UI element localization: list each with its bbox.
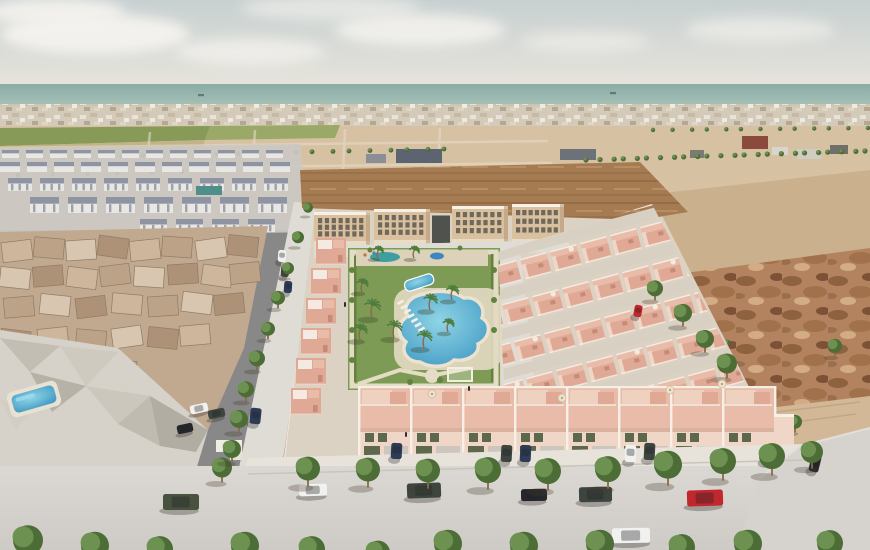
old-town-house bbox=[213, 292, 245, 315]
distant-tree-highlight bbox=[389, 148, 392, 151]
estate-roof bbox=[218, 150, 235, 153]
parasol-pole bbox=[721, 383, 723, 385]
palm-shadow bbox=[358, 317, 379, 324]
estate-arch bbox=[107, 184, 109, 191]
estate-roof bbox=[182, 197, 211, 204]
estate-roof bbox=[270, 162, 290, 166]
distant-tree-highlight bbox=[816, 150, 819, 153]
terrace-pergola bbox=[754, 392, 770, 405]
estate-arch bbox=[205, 204, 207, 212]
apartment-window bbox=[456, 228, 460, 233]
estate-roof bbox=[176, 219, 203, 224]
old-town-house bbox=[201, 264, 233, 288]
estate-arch bbox=[53, 204, 55, 212]
facade-cornice bbox=[514, 428, 566, 432]
apartment-window bbox=[497, 220, 501, 225]
terrace-pergola bbox=[702, 392, 718, 405]
distant-tree-highlight bbox=[739, 127, 742, 130]
palm-shadow bbox=[351, 292, 365, 297]
apartment-window bbox=[522, 219, 526, 224]
distant-tree-highlight bbox=[672, 155, 675, 158]
shrub bbox=[349, 267, 355, 273]
tree-shadow bbox=[823, 356, 838, 360]
estate-arch bbox=[157, 204, 159, 212]
estate-arch bbox=[115, 184, 117, 191]
tree-crown-highlight bbox=[759, 444, 777, 462]
estate-roof bbox=[258, 197, 287, 204]
estate-roof bbox=[54, 162, 74, 166]
old-town-house bbox=[161, 236, 192, 258]
tree-shadow bbox=[668, 325, 687, 330]
west-roof bbox=[333, 240, 344, 248]
west-terrace bbox=[313, 270, 327, 279]
estate-roof bbox=[200, 178, 224, 183]
tree-crown-highlight bbox=[434, 531, 454, 550]
estate-roof bbox=[162, 162, 182, 166]
distant-tree-highlight bbox=[635, 156, 638, 159]
estate-arch bbox=[81, 204, 83, 212]
facade-cornice bbox=[462, 428, 514, 432]
apartment-window bbox=[541, 210, 545, 215]
estate-arch bbox=[281, 204, 283, 212]
apartment-window bbox=[483, 212, 487, 217]
old-town-house bbox=[66, 266, 98, 290]
tree-shadow bbox=[527, 488, 554, 496]
terrace-pergola bbox=[494, 392, 510, 405]
west-door bbox=[333, 285, 338, 292]
warehouse bbox=[366, 154, 386, 163]
tree-crown-highlight bbox=[674, 305, 687, 318]
estate-arch bbox=[186, 184, 188, 191]
west-door bbox=[328, 315, 333, 322]
terrace-railing-inner bbox=[672, 404, 720, 406]
estate-roof bbox=[81, 162, 101, 166]
old-town-house bbox=[32, 265, 64, 288]
shuttered-window bbox=[690, 433, 699, 442]
old-town-house bbox=[111, 325, 143, 349]
old-town-house bbox=[229, 261, 261, 284]
terrace-railing bbox=[618, 386, 670, 388]
terrace-floor bbox=[726, 390, 756, 404]
estate-arch bbox=[11, 184, 13, 191]
terrace-railing-inner bbox=[516, 404, 564, 406]
estate-arch bbox=[179, 184, 181, 191]
car-white bbox=[608, 528, 650, 549]
apartment-window bbox=[419, 230, 423, 235]
tree-crown-highlight bbox=[696, 331, 709, 344]
apartment-window bbox=[412, 222, 416, 227]
west-roof bbox=[323, 300, 334, 308]
apartment-window bbox=[516, 210, 520, 215]
tree-crown-highlight bbox=[734, 531, 754, 550]
estate-arch bbox=[147, 184, 149, 191]
west-terrace bbox=[318, 240, 332, 249]
tree-crown-highlight bbox=[828, 339, 838, 349]
apartment-window bbox=[470, 212, 474, 217]
gazebo bbox=[448, 368, 472, 381]
palm-shadow bbox=[410, 347, 429, 353]
tree-shadow bbox=[256, 339, 271, 343]
tree-shadow bbox=[266, 308, 281, 312]
distant-tree-highlight bbox=[827, 126, 830, 129]
car-red bbox=[683, 489, 724, 511]
palm-shadow bbox=[440, 300, 456, 305]
distant-tree-highlight bbox=[368, 148, 371, 151]
estate-roof bbox=[30, 197, 59, 204]
distant-ship bbox=[610, 92, 616, 94]
estate-arch bbox=[91, 204, 93, 212]
distant-tree-highlight bbox=[658, 155, 661, 158]
apartment-window bbox=[483, 220, 487, 225]
cloud bbox=[685, 17, 835, 43]
palm-shadow bbox=[437, 332, 451, 337]
old-town-house bbox=[33, 237, 65, 260]
car-cabin bbox=[626, 449, 634, 457]
apartment-window bbox=[359, 231, 363, 236]
outbuilding bbox=[830, 145, 848, 154]
distant-tree-highlight bbox=[695, 154, 698, 157]
apartment-window bbox=[318, 231, 322, 236]
apartment-window bbox=[535, 219, 539, 224]
shuttered-window bbox=[378, 433, 387, 442]
distant-tree-highlight bbox=[854, 149, 857, 152]
facade-cornice bbox=[410, 428, 462, 432]
estate-arch bbox=[90, 184, 92, 191]
estate-roof bbox=[144, 197, 173, 204]
apartment-window bbox=[456, 220, 460, 225]
old-town-house bbox=[97, 235, 129, 259]
old-town-house bbox=[99, 263, 131, 287]
terrace-railing bbox=[566, 386, 618, 388]
apartment-window bbox=[399, 215, 403, 220]
entrance-gate bbox=[432, 213, 450, 243]
car-green bbox=[159, 494, 199, 515]
tree-crown-highlight bbox=[717, 354, 731, 368]
shuttered-window bbox=[625, 433, 634, 442]
distant-tree-highlight bbox=[310, 150, 313, 153]
sports-court bbox=[196, 186, 222, 195]
distant-tree-highlight bbox=[733, 153, 736, 156]
palm-shadow bbox=[380, 337, 399, 343]
west-base bbox=[316, 264, 346, 265]
west-base bbox=[296, 384, 326, 385]
apartment-window bbox=[490, 212, 494, 217]
tree-crown-highlight bbox=[475, 458, 493, 476]
estate-arch bbox=[250, 184, 252, 191]
parasol-pole bbox=[561, 397, 563, 399]
tree-crown-highlight bbox=[416, 459, 433, 476]
sea bbox=[0, 84, 870, 106]
apartment-window bbox=[456, 212, 460, 217]
apartment-window bbox=[339, 225, 343, 230]
apartment-parapet bbox=[452, 206, 508, 209]
distant-tree-highlight bbox=[812, 126, 815, 129]
car-cabin bbox=[645, 447, 653, 455]
estate-roof bbox=[0, 162, 20, 166]
estate-roof bbox=[68, 197, 97, 204]
tree-crown-highlight bbox=[586, 531, 606, 550]
apartment-window bbox=[339, 218, 343, 223]
estate-arch bbox=[58, 184, 60, 191]
tree-shadow bbox=[751, 473, 778, 481]
outbuilding bbox=[742, 136, 768, 149]
distant-tree-highlight bbox=[779, 151, 782, 154]
old-town-house bbox=[129, 238, 161, 261]
apartment-window bbox=[378, 215, 382, 220]
tree-crown-highlight bbox=[647, 281, 658, 292]
apartment-window bbox=[522, 210, 526, 215]
warehouse bbox=[396, 149, 442, 163]
plaza bbox=[425, 369, 439, 383]
west-roof bbox=[313, 360, 324, 368]
estate-roof bbox=[232, 178, 256, 183]
apartment-window bbox=[399, 222, 403, 227]
shuttered-window bbox=[638, 433, 647, 442]
west-base bbox=[306, 324, 336, 325]
car-cabin bbox=[279, 252, 285, 257]
tree-shadow bbox=[587, 486, 614, 494]
apartment-parapet bbox=[314, 212, 370, 215]
terrace-railing bbox=[514, 386, 566, 388]
estate-roof bbox=[220, 197, 249, 204]
distant-tree-highlight bbox=[778, 127, 781, 130]
terrace-floor bbox=[518, 390, 548, 404]
estate-arch bbox=[71, 204, 73, 212]
apartment-window bbox=[412, 215, 416, 220]
estate-arch bbox=[167, 204, 169, 212]
facade-cornice bbox=[722, 428, 774, 432]
apartment-window bbox=[477, 220, 481, 225]
estate-roof bbox=[122, 150, 139, 153]
tree-crown-highlight bbox=[238, 382, 249, 393]
old-town-house bbox=[133, 266, 164, 288]
distant-ship bbox=[198, 94, 204, 96]
estate-roof bbox=[212, 219, 239, 224]
estate-roof bbox=[135, 162, 155, 166]
apartment-window bbox=[318, 225, 322, 230]
terrace-floor bbox=[622, 390, 652, 404]
shuttered-window bbox=[586, 433, 595, 442]
apartment-window bbox=[378, 222, 382, 227]
apartment-window bbox=[405, 215, 409, 220]
terrace-floor bbox=[362, 390, 392, 404]
estate-arch bbox=[223, 204, 225, 212]
shuttered-window bbox=[469, 433, 478, 442]
estate-arch bbox=[233, 204, 235, 212]
terrace-railing bbox=[410, 386, 462, 388]
parasol-pole bbox=[431, 393, 433, 395]
estate-arch bbox=[154, 184, 156, 191]
west-door bbox=[323, 345, 328, 352]
tree-crown-highlight bbox=[249, 351, 260, 362]
tree-shadow bbox=[288, 246, 301, 250]
west-roof bbox=[318, 330, 329, 338]
old-town-house bbox=[75, 295, 107, 319]
tree-crown-highlight bbox=[535, 459, 553, 477]
estate-arch bbox=[139, 184, 141, 191]
tree-crown-highlight bbox=[230, 411, 243, 424]
terrace-pergola bbox=[650, 392, 666, 405]
tree-shadow bbox=[224, 431, 243, 436]
old-town-house bbox=[65, 239, 96, 261]
apartment-window bbox=[405, 230, 409, 235]
distant-tree-highlight bbox=[863, 149, 866, 152]
apartment-shadow bbox=[366, 212, 370, 246]
estate-arch bbox=[235, 184, 237, 191]
facade-cornice bbox=[358, 428, 410, 432]
pedestrian bbox=[405, 432, 407, 437]
distant-tree-highlight bbox=[793, 151, 796, 154]
apartment-window bbox=[359, 218, 363, 223]
estate-roof bbox=[106, 197, 135, 204]
terrace-railing bbox=[670, 386, 722, 388]
apartment-window bbox=[325, 225, 329, 230]
shrub bbox=[491, 267, 497, 273]
apartment-window bbox=[483, 228, 487, 233]
shrub bbox=[437, 377, 443, 383]
terrace-floor bbox=[674, 390, 704, 404]
apartment-window bbox=[399, 230, 403, 235]
car-cabin bbox=[285, 283, 291, 288]
estate-roof bbox=[146, 150, 163, 153]
apartment-window bbox=[345, 231, 349, 236]
distant-tree-highlight bbox=[426, 147, 429, 150]
estate-court bbox=[196, 186, 222, 195]
estate-arch bbox=[195, 204, 197, 212]
shrub bbox=[491, 327, 497, 333]
distant-tree-highlight bbox=[612, 157, 615, 160]
tree-crown-highlight bbox=[292, 232, 300, 240]
estate-arch bbox=[129, 204, 131, 212]
tree-crown-highlight bbox=[271, 291, 281, 301]
apartment-window bbox=[392, 230, 396, 235]
estate-roof bbox=[74, 150, 91, 153]
estate-arch bbox=[33, 204, 35, 212]
apartment-window bbox=[378, 230, 382, 235]
distant-tree-highlight bbox=[405, 148, 408, 151]
gate-rim bbox=[432, 213, 450, 216]
apartment-window bbox=[345, 225, 349, 230]
terrace-railing-inner bbox=[724, 404, 772, 406]
apartment-window bbox=[529, 219, 533, 224]
estate-arch bbox=[26, 184, 28, 191]
estate-roof bbox=[8, 178, 32, 183]
car-cabin bbox=[392, 446, 400, 453]
render-canvas bbox=[0, 0, 870, 550]
car-cabin bbox=[251, 411, 260, 419]
estate-arch bbox=[271, 204, 273, 212]
terrace-pergola bbox=[390, 392, 406, 405]
facade-cornice bbox=[618, 428, 670, 432]
shuttered-window bbox=[482, 433, 491, 442]
shrub bbox=[349, 357, 355, 363]
apartment-window bbox=[385, 215, 389, 220]
shrub bbox=[407, 379, 413, 385]
tree-crown-highlight bbox=[296, 457, 313, 474]
kids-pool bbox=[430, 253, 444, 260]
estate-arch bbox=[243, 204, 245, 212]
west-base bbox=[301, 354, 331, 355]
estate-roof bbox=[248, 219, 275, 224]
shuttered-window bbox=[521, 433, 530, 442]
palm-shadow bbox=[404, 258, 417, 262]
apartment-window bbox=[497, 228, 501, 233]
estate-roof bbox=[266, 150, 283, 153]
apartment-window bbox=[332, 231, 336, 236]
apartment-window bbox=[490, 228, 494, 233]
estate-arch bbox=[83, 184, 85, 191]
car-cabin bbox=[695, 492, 713, 504]
estate-arch bbox=[185, 204, 187, 212]
distant-tree-highlight bbox=[825, 150, 828, 153]
west-base bbox=[311, 294, 341, 295]
apartment-window bbox=[497, 212, 501, 217]
estate-roof bbox=[168, 178, 192, 183]
distant-tree-highlight bbox=[347, 149, 350, 152]
distant-tree-highlight bbox=[866, 126, 869, 129]
shrub bbox=[349, 297, 355, 303]
estate-arch bbox=[261, 204, 263, 212]
apartment-window bbox=[470, 228, 474, 233]
estate-arch bbox=[19, 184, 21, 191]
apartment-window bbox=[359, 225, 363, 230]
car-cabin bbox=[621, 530, 640, 541]
terrace-floor bbox=[570, 390, 600, 404]
terrace-railing-inner bbox=[620, 404, 668, 406]
old-town-house bbox=[0, 266, 31, 289]
apartment-window bbox=[352, 218, 356, 223]
tree-shadow bbox=[300, 216, 311, 219]
distant-tree-highlight bbox=[705, 154, 708, 157]
distant-tree-highlight bbox=[598, 157, 601, 160]
apartment-window bbox=[419, 222, 423, 227]
old-town-house bbox=[195, 237, 227, 261]
distant-tree-highlight bbox=[756, 152, 759, 155]
apartment-window bbox=[541, 219, 545, 224]
apartment-window bbox=[529, 227, 533, 232]
apartment-window bbox=[554, 210, 558, 215]
tree-shadow bbox=[408, 486, 433, 493]
estate-roof bbox=[27, 162, 47, 166]
apartment-window bbox=[547, 219, 551, 224]
estate-roof bbox=[98, 150, 115, 153]
distant-tree-highlight bbox=[442, 147, 445, 150]
estate-roof bbox=[136, 178, 160, 183]
car-cabin bbox=[521, 449, 529, 457]
estate-roof bbox=[72, 178, 96, 183]
apartment-window bbox=[535, 210, 539, 215]
tree-shadow bbox=[348, 485, 373, 492]
distant-tree-highlight bbox=[724, 127, 727, 130]
tree-shadow bbox=[794, 467, 817, 474]
apartment-window bbox=[522, 227, 526, 232]
old-town-house bbox=[3, 296, 35, 319]
old-town-house bbox=[167, 263, 198, 285]
tree-shadow bbox=[233, 401, 250, 406]
apartment-window bbox=[516, 227, 520, 232]
apartment-window bbox=[547, 227, 551, 232]
west-door bbox=[318, 375, 323, 382]
distant-tree-highlight bbox=[681, 154, 684, 157]
estate-roof bbox=[2, 150, 19, 153]
old-town-house bbox=[227, 234, 259, 257]
apartment-window bbox=[332, 218, 336, 223]
old-town-house bbox=[111, 293, 143, 316]
estate-roof bbox=[242, 150, 259, 153]
tree-crown-highlight bbox=[710, 449, 728, 467]
parasol-pole bbox=[669, 389, 671, 391]
car-cabin bbox=[172, 497, 190, 508]
